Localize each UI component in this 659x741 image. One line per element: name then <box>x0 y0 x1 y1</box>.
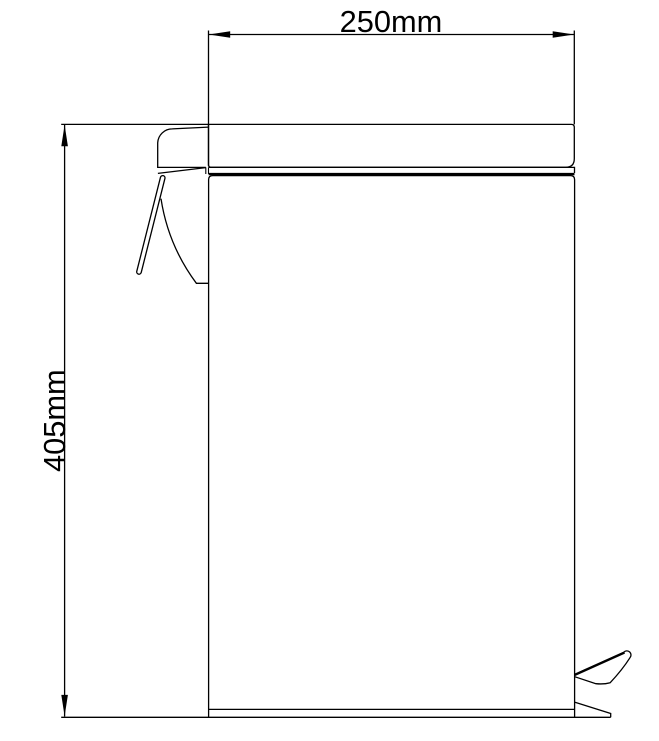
svg-text:250mm: 250mm <box>340 4 443 39</box>
svg-text:405mm: 405mm <box>37 369 72 472</box>
